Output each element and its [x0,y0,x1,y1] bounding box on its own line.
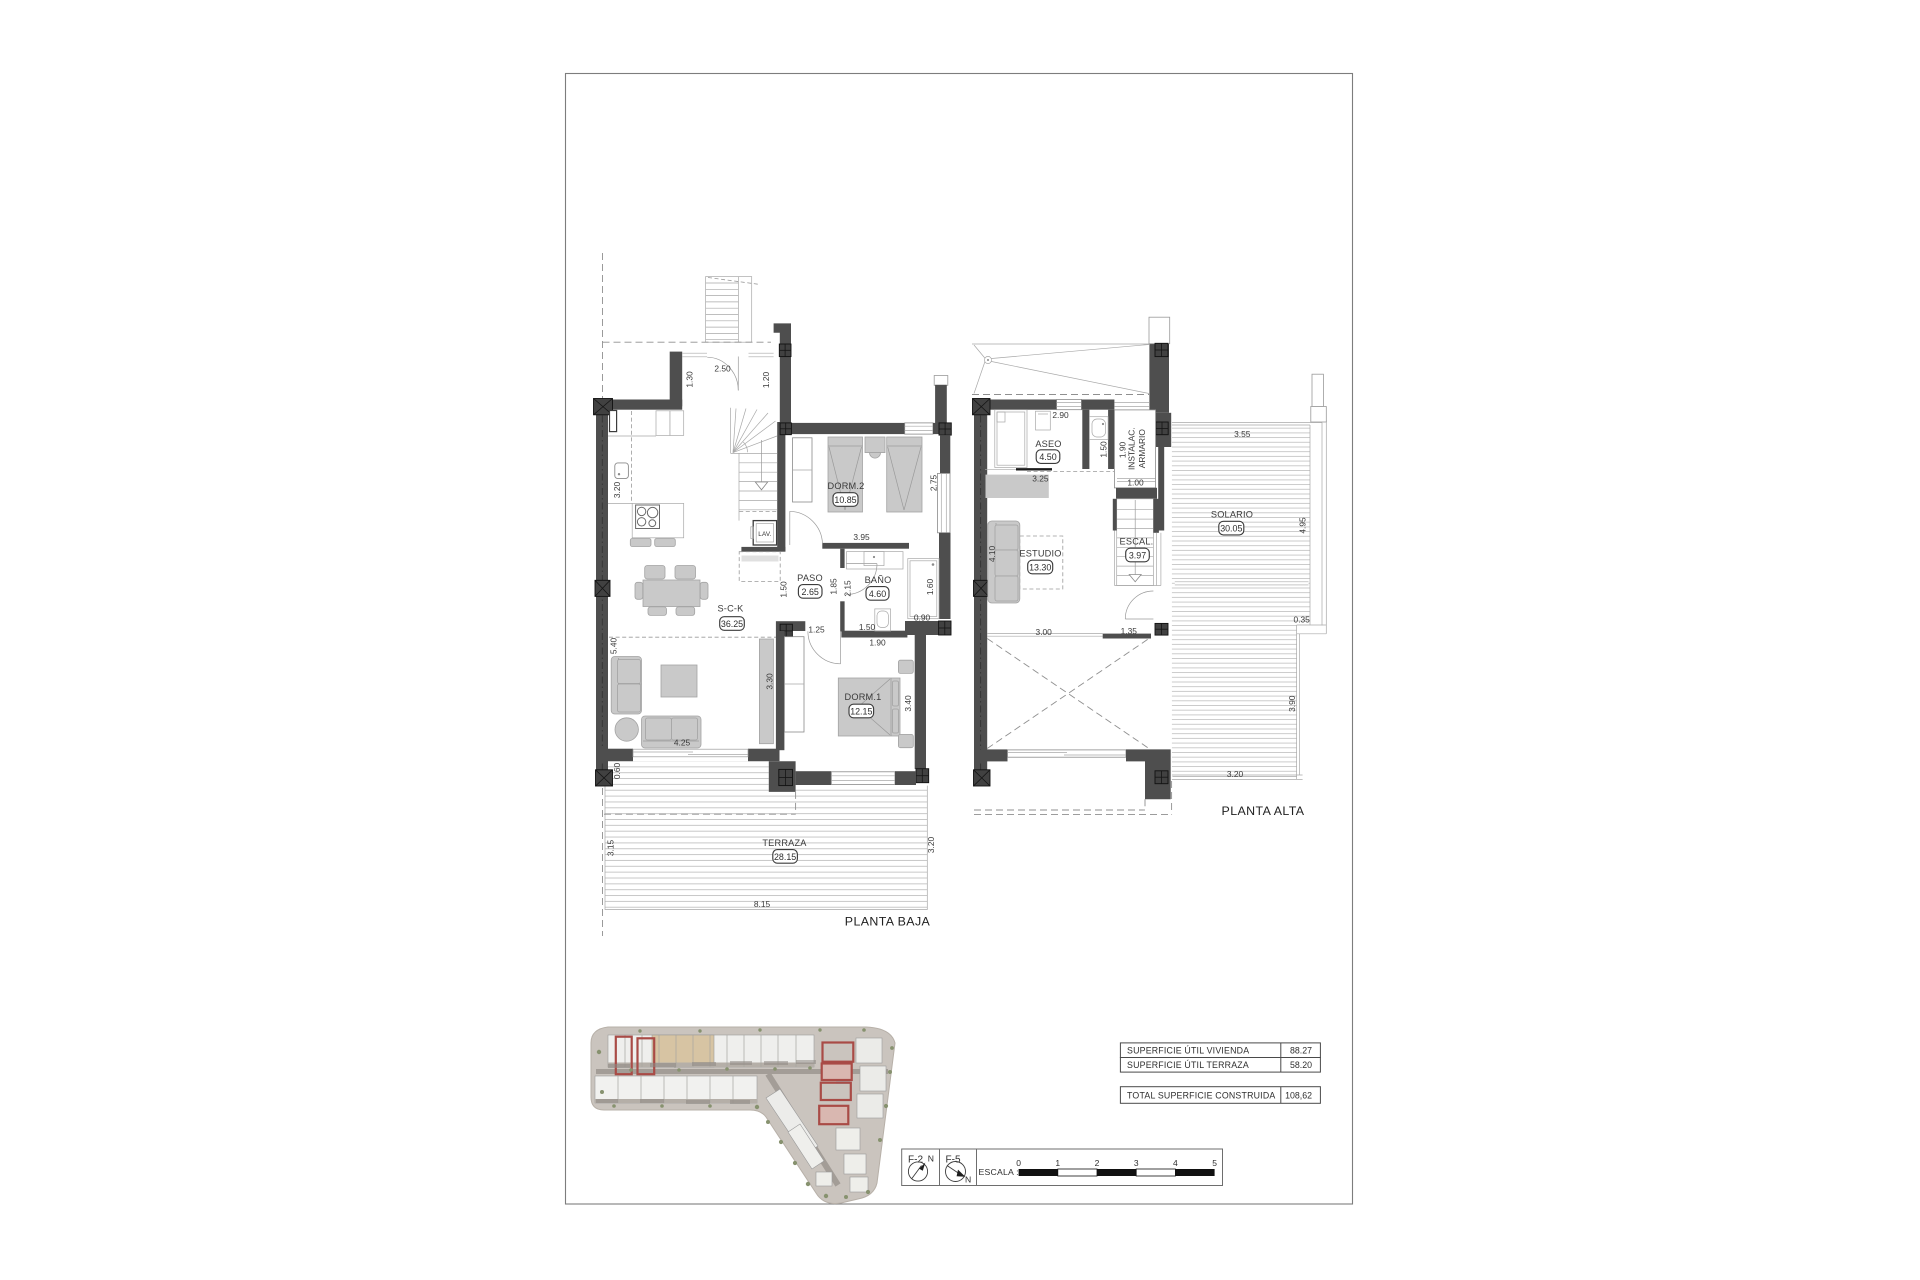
svg-text:0: 0 [1016,1158,1021,1168]
svg-text:PLANTA ALTA: PLANTA ALTA [1222,804,1305,818]
svg-text:2.90: 2.90 [1052,410,1069,420]
svg-text:3.15: 3.15 [606,840,616,857]
svg-text:PASO: PASO [797,573,823,583]
svg-text:2.50: 2.50 [714,364,731,374]
svg-text:12.15: 12.15 [850,707,872,717]
svg-text:0.90: 0.90 [914,613,931,623]
svg-text:S-C-K: S-C-K [717,604,744,614]
svg-text:3.95: 3.95 [853,532,870,542]
svg-text:30.05: 30.05 [1220,524,1242,534]
svg-text:2.65: 2.65 [802,587,819,597]
svg-text:3: 3 [1134,1158,1139,1168]
svg-text:5: 5 [1212,1158,1217,1168]
svg-text:3.25: 3.25 [1032,473,1049,483]
svg-text:ASEO: ASEO [1035,439,1061,449]
svg-text:BAÑO: BAÑO [865,575,892,585]
svg-text:1.25: 1.25 [808,625,825,635]
svg-text:SUPERFICIE ÚTIL TERRAZA: SUPERFICIE ÚTIL TERRAZA [1127,1060,1249,1070]
svg-text:0.60: 0.60 [612,763,622,780]
svg-text:TERRAZA: TERRAZA [762,838,807,848]
svg-text:2: 2 [1095,1158,1100,1168]
svg-text:108,62: 108,62 [1285,1090,1312,1100]
svg-text:5.40: 5.40 [609,638,619,655]
svg-text:F-5: F-5 [946,1155,961,1166]
svg-text:1.50: 1.50 [1099,441,1109,458]
svg-text:SOLARIO: SOLARIO [1211,510,1253,520]
svg-text:13.30: 13.30 [1029,563,1051,573]
svg-text:3.55: 3.55 [1234,429,1251,439]
svg-text:1.30: 1.30 [685,371,695,388]
svg-text:4.10: 4.10 [987,546,997,563]
svg-text:1.00: 1.00 [1127,477,1144,487]
svg-text:3.20: 3.20 [926,837,936,854]
svg-text:DORM.2: DORM.2 [828,481,865,491]
svg-text:LAV.: LAV. [758,531,771,538]
svg-text:1.50: 1.50 [779,581,789,598]
svg-text:4.60: 4.60 [869,589,886,599]
svg-text:3.00: 3.00 [1036,627,1053,637]
svg-text:4.25: 4.25 [674,738,691,748]
svg-text:1.60: 1.60 [925,579,935,596]
svg-text:4.95: 4.95 [1298,517,1308,534]
svg-text:1: 1 [1055,1158,1060,1168]
svg-text:ARMARIO: ARMARIO [1137,429,1147,469]
svg-text:2.75: 2.75 [929,475,939,492]
svg-text:N: N [965,1175,971,1185]
svg-text:DORM.1: DORM.1 [845,692,882,702]
svg-text:0.35: 0.35 [1294,615,1311,625]
svg-text:ESCAL.: ESCAL. [1120,537,1154,547]
svg-text:1.50: 1.50 [859,622,876,632]
svg-text:36.25: 36.25 [721,619,743,629]
svg-text:4.50: 4.50 [1039,452,1056,462]
svg-text:F-2: F-2 [908,1155,923,1166]
svg-text:28.15: 28.15 [774,852,796,862]
svg-text:3.90: 3.90 [1287,695,1297,712]
svg-text:1.90: 1.90 [869,638,886,648]
svg-text:1.20: 1.20 [761,372,771,389]
svg-text:88.27: 88.27 [1290,1046,1312,1056]
svg-text:1.90: 1.90 [1118,442,1128,459]
svg-text:SUPERFICIE ÚTIL VIVIENDA: SUPERFICIE ÚTIL VIVIENDA [1127,1046,1249,1056]
svg-text:58.20: 58.20 [1290,1060,1312,1070]
svg-text:3.30: 3.30 [765,673,775,690]
svg-text:1.35: 1.35 [1121,626,1138,636]
svg-text:ESCALA :: ESCALA : [979,1167,1019,1177]
svg-text:3.20: 3.20 [1227,769,1244,779]
svg-text:2.15: 2.15 [843,580,853,597]
svg-text:3.40: 3.40 [903,695,913,712]
svg-text:3.20: 3.20 [612,482,622,499]
svg-text:10.85: 10.85 [834,495,856,505]
svg-text:TOTAL SUPERFICIE CONSTRUIDA: TOTAL SUPERFICIE CONSTRUIDA [1127,1090,1275,1100]
svg-text:ESTUDIO: ESTUDIO [1019,549,1061,559]
svg-text:PLANTA BAJA: PLANTA BAJA [845,915,931,929]
svg-text:1.85: 1.85 [829,578,839,595]
svg-text:N: N [928,1154,934,1164]
svg-text:4: 4 [1173,1158,1178,1168]
svg-text:INSTALAC.: INSTALAC. [1127,427,1137,470]
svg-text:8.15: 8.15 [754,899,771,909]
svg-text:3.97: 3.97 [1129,551,1146,561]
